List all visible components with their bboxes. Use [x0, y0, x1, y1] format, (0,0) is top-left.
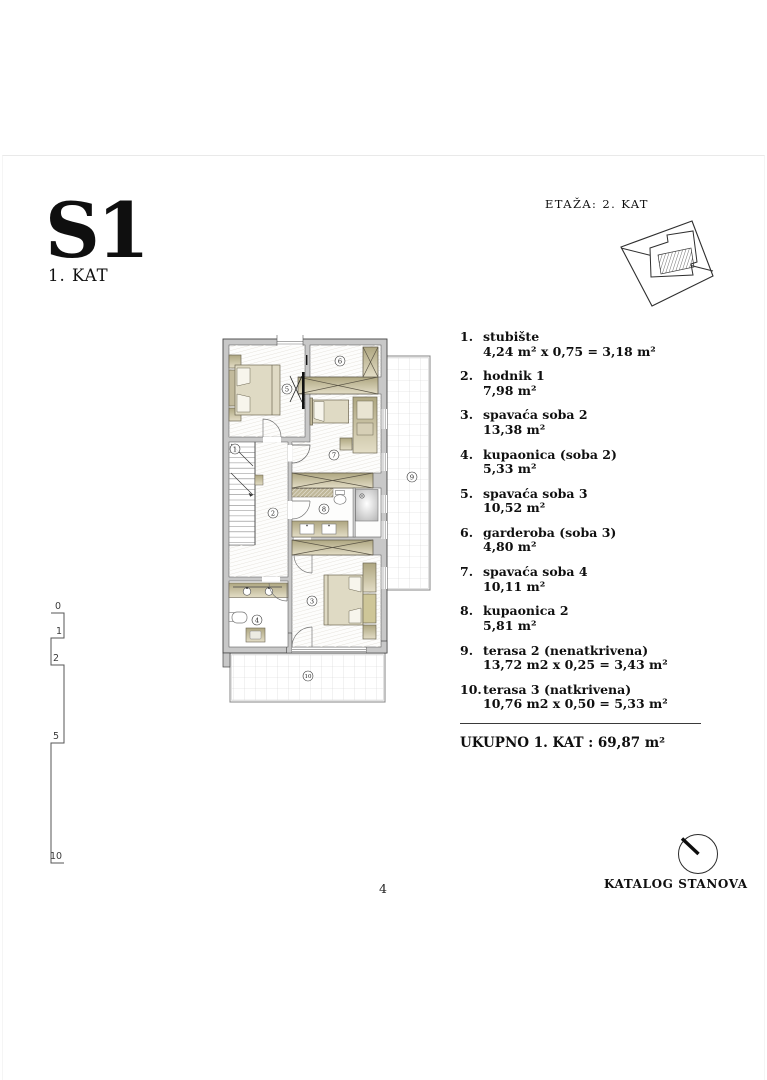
catalog-page: S1 1. KAT ETAŽA: 2. KAT — [0, 0, 767, 1080]
legend-item: 9. terasa 2 (nenatkrivena) 13,72 m2 x 0,… — [460, 644, 722, 683]
legend-item-number: 3. — [460, 408, 483, 447]
room-label-9: 9 — [410, 473, 414, 481]
legend-item-area: 13,38 m² — [483, 423, 722, 437]
legend-item-number: 5. — [460, 487, 483, 526]
legend-item: 6. garderoba (soba 3) 4,80 m² — [460, 526, 722, 565]
legend-item-name: garderoba (soba 3) — [483, 526, 722, 540]
bed-room-5 — [229, 355, 280, 421]
room-label-10: 10 — [305, 674, 312, 680]
legend-item: 7. spavaća soba 4 10,11 m² — [460, 565, 722, 604]
legend-item-area: 4,80 m² — [483, 540, 722, 554]
legend-item-number: 1. — [460, 330, 483, 369]
room-label-7: 7 — [332, 451, 336, 459]
floor-label: 1. KAT — [48, 266, 109, 285]
legend-item-number: 4. — [460, 448, 483, 487]
scale-tick-2: 2 — [53, 653, 59, 664]
room-label-5: 5 — [285, 385, 289, 393]
legend-item-area: 10,11 m² — [483, 580, 722, 594]
legend-item-number: 9. — [460, 644, 483, 683]
north-arrow-icon — [673, 830, 723, 878]
legend-item-name: kupaonica 2 — [483, 604, 722, 618]
etaza-label: ETAŽA: 2. KAT — [545, 197, 649, 211]
legend-item: 8. kupaonica 2 5,81 m² — [460, 604, 722, 643]
legend-item-number: 7. — [460, 565, 483, 604]
legend-item-name: hodnik 1 — [483, 369, 722, 383]
room-label-6: 6 — [338, 357, 342, 365]
legend-item-area: 10,52 m² — [483, 501, 722, 515]
legend-item-number: 6. — [460, 526, 483, 565]
legend-item-name: terasa 3 (natkrivena) — [483, 683, 722, 697]
floor-plan: 1 2 3 4 5 6 7 8 9 10 — [200, 325, 450, 715]
legend-item-area: 7,98 m² — [483, 384, 722, 398]
page-number: 4 — [370, 881, 396, 896]
legend-item-number: 2. — [460, 369, 483, 408]
legend-item: 5. spavaća soba 3 10,52 m² — [460, 487, 722, 526]
legend-item: 2. hodnik 1 7,98 m² — [460, 369, 722, 408]
scale-tick-5: 5 — [53, 731, 59, 742]
legend-item: 4. kupaonica (soba 2) 5,33 m² — [460, 448, 722, 487]
legend-item-number: 8. — [460, 604, 483, 643]
legend-item-name: stubište — [483, 330, 722, 344]
terrace-9 — [385, 356, 430, 590]
room-label-2: 2 — [271, 509, 275, 517]
total-divider — [460, 723, 701, 724]
legend-item-area: 13,72 m2 x 0,25 = 3,43 m² — [483, 658, 722, 672]
scale-bar: 0 1 2 5 10 — [44, 595, 74, 880]
room-label-1: 1 — [233, 445, 237, 453]
legend-item-area: 5,33 m² — [483, 462, 722, 476]
legend-item-name: spavaća soba 3 — [483, 487, 722, 501]
legend-item-name: kupaonica (soba 2) — [483, 448, 722, 462]
room-label-8: 8 — [322, 505, 326, 513]
room-label-4: 4 — [255, 616, 259, 624]
catalog-label: KATALOG STANOVA — [604, 877, 748, 891]
legend: 1. stubište 4,24 m² x 0,75 = 3,18 m² 2. … — [460, 330, 722, 722]
legend-item-area: 10,76 m2 x 0,50 = 5,33 m² — [483, 697, 722, 711]
room-label-3: 3 — [310, 597, 314, 605]
scale-tick-1: 1 — [56, 626, 62, 637]
legend-item-name: spavaća soba 4 — [483, 565, 722, 579]
scale-tick-0: 0 — [55, 601, 61, 612]
legend-item-area: 5,81 m² — [483, 619, 722, 633]
site-plan-icon — [618, 215, 728, 320]
scale-tick-10: 10 — [50, 851, 62, 862]
unit-code: S1 — [45, 192, 147, 270]
legend-item: 10. terasa 3 (natkrivena) 10,76 m2 x 0,5… — [460, 683, 722, 722]
legend-item-name: terasa 2 (nenatkrivena) — [483, 644, 722, 658]
legend-item-name: spavaća soba 2 — [483, 408, 722, 422]
legend-item-number: 10. — [460, 683, 483, 722]
legend-item: 1. stubište 4,24 m² x 0,75 = 3,18 m² — [460, 330, 722, 369]
total-area: UKUPNO 1. KAT : 69,87 m² — [460, 735, 665, 751]
legend-item-area: 4,24 m² x 0,75 = 3,18 m² — [483, 345, 722, 359]
legend-item: 3. spavaća soba 2 13,38 m² — [460, 408, 722, 447]
